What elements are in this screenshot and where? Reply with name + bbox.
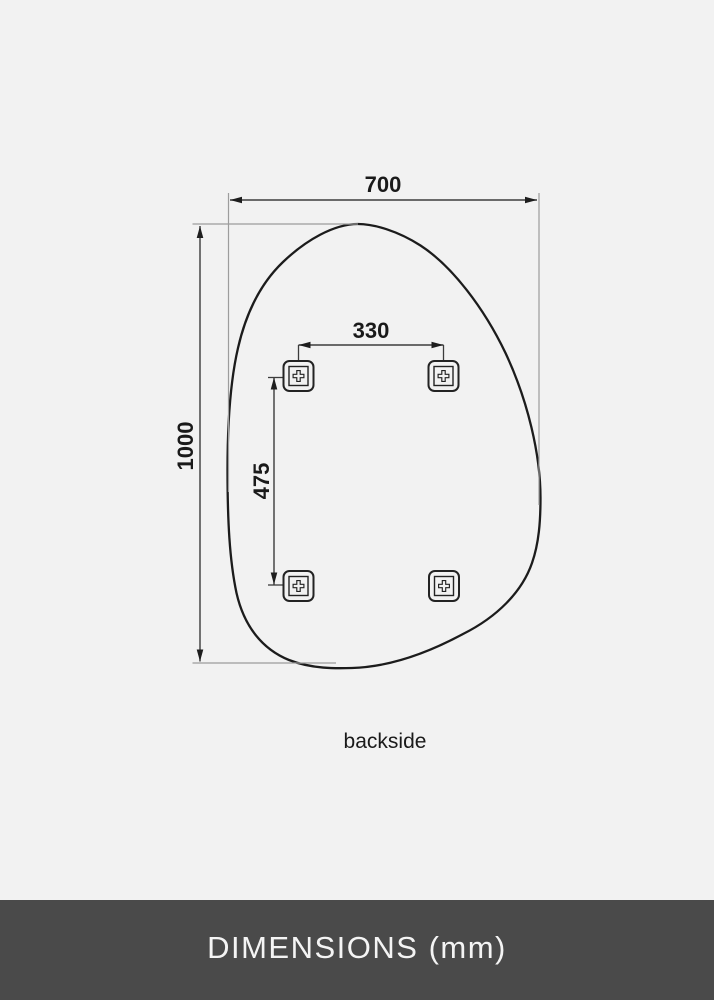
drawing-area: 700 1000 330 475	[0, 0, 714, 900]
mounting-bracket-top-right	[429, 361, 459, 391]
height-dimension: 1000	[173, 226, 200, 662]
bracket-spacing-horizontal-dimension: 330	[299, 318, 444, 360]
bracket-spacing-vertical-dimension: 475	[249, 378, 283, 586]
footer-title: DIMENSIONS (mm)	[207, 930, 507, 966]
bracket-outer-plate	[284, 571, 314, 601]
bracket-outer-plate	[429, 571, 459, 601]
mounting-bracket-bottom-left	[284, 571, 314, 601]
bracket-spacing-horizontal-label: 330	[353, 318, 390, 343]
extension-lines	[193, 193, 540, 663]
bracket-outer-plate	[429, 361, 459, 391]
mounting-bracket-top-left	[284, 361, 314, 391]
bracket-spacing-vertical-label: 475	[249, 463, 274, 500]
footer-bar: DIMENSIONS (mm)	[0, 900, 714, 1000]
dimension-sheet: 700 1000 330 475	[0, 0, 714, 1000]
width-dimension-label: 700	[365, 172, 402, 197]
height-dimension-label: 1000	[173, 422, 198, 471]
view-caption: backside	[344, 730, 427, 753]
bracket-outer-plate	[284, 361, 314, 391]
width-dimension: 700	[230, 172, 537, 200]
mounting-bracket-bottom-right	[429, 571, 459, 601]
mirror-dimension-diagram: 700 1000 330 475	[0, 0, 714, 900]
